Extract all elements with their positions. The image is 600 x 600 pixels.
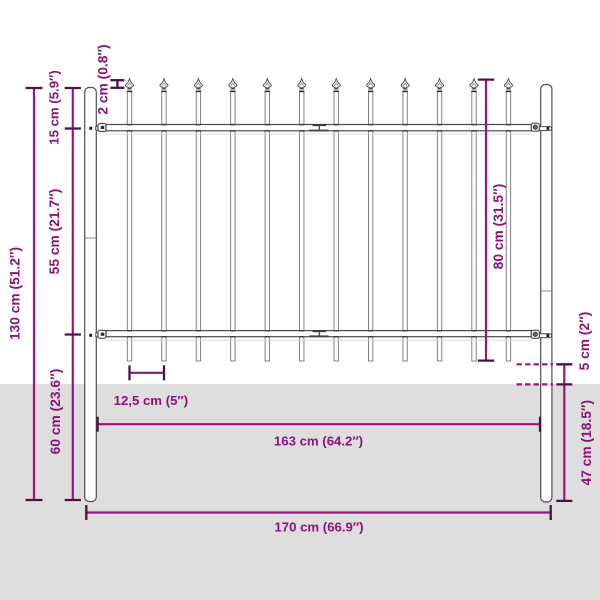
svg-text:12,5 cm (5″): 12,5 cm (5″): [114, 393, 189, 408]
svg-text:2 cm (0.8″): 2 cm (0.8″): [95, 44, 110, 114]
svg-text:55 cm (21.7″): 55 cm (21.7″): [47, 189, 62, 275]
svg-text:5 cm (2″): 5 cm (2″): [577, 312, 592, 371]
svg-text:163 cm (64.2″): 163 cm (64.2″): [274, 434, 363, 449]
svg-text:170 cm (66.9″): 170 cm (66.9″): [274, 520, 363, 535]
svg-text:80 cm (31.5″): 80 cm (31.5″): [491, 184, 506, 270]
svg-text:15 cm (5.9″): 15 cm (5.9″): [47, 70, 62, 144]
svg-text:60 cm (23.6″): 60 cm (23.6″): [48, 369, 63, 455]
svg-text:47 cm (18.5″): 47 cm (18.5″): [579, 400, 594, 486]
svg-text:130 cm (51.2″): 130 cm (51.2″): [8, 247, 23, 340]
